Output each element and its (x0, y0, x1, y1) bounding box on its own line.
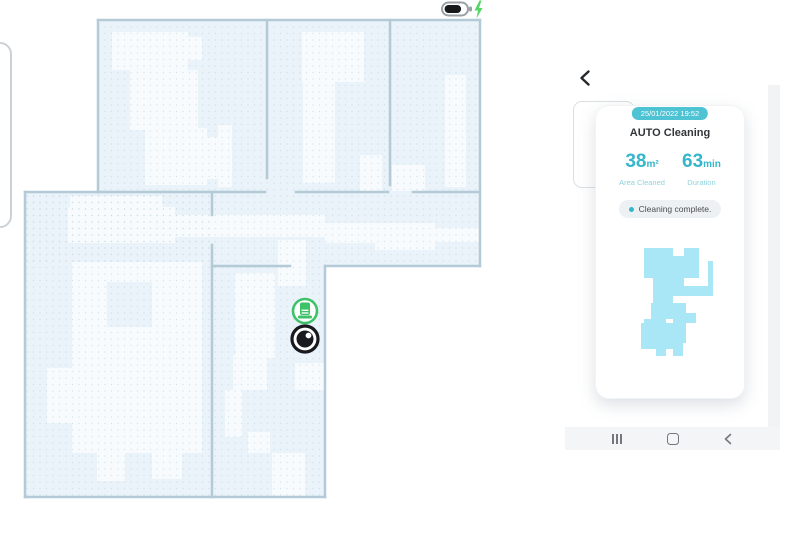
duration-unit: min (703, 159, 721, 170)
battery-charging-icon (442, 1, 483, 19)
recents-icon (612, 434, 622, 444)
battery-status (440, 0, 490, 20)
home-icon (667, 433, 679, 445)
charging-dock-marker (293, 299, 317, 323)
floor-map[interactable] (0, 0, 500, 520)
robot-lidar-dot (306, 333, 312, 339)
robot-marker (292, 326, 318, 352)
next-card-edge (768, 85, 780, 427)
map-dot-texture (25, 20, 480, 497)
back-button[interactable] (577, 69, 595, 87)
back-chevron-icon (577, 69, 595, 87)
area-value: 38 (625, 151, 646, 172)
dock-icon (298, 303, 312, 319)
status-dot-icon (629, 207, 634, 212)
stat-area: 38m² Area Cleaned (619, 152, 665, 187)
report-title: AUTO Cleaning (596, 127, 744, 139)
nav-back-button[interactable] (720, 431, 736, 447)
status-badge: Cleaning complete. (619, 200, 722, 218)
stats-row: 38m² Area Cleaned 63min Duration (596, 152, 744, 187)
phone-screen: 25/01/2022 19:52 AUTO Cleaning 38m² Area… (565, 56, 780, 450)
robot-body (297, 331, 314, 348)
duration-value: 63 (682, 151, 703, 172)
duration-label: Duration (687, 178, 715, 187)
home-button[interactable] (665, 431, 681, 447)
stat-duration: 63min Duration (682, 152, 721, 187)
recents-button[interactable] (609, 431, 625, 447)
cleaning-report-card: 25/01/2022 19:52 AUTO Cleaning 38m² Area… (595, 105, 745, 399)
status-text: Cleaning complete. (639, 204, 712, 214)
charging-bolt-icon (475, 1, 483, 19)
back-icon (723, 433, 733, 445)
date-badge: 25/01/2022 19:52 (632, 107, 708, 120)
area-label: Area Cleaned (619, 178, 665, 187)
android-nav-bar (565, 427, 780, 450)
area-unit: m² (646, 159, 658, 170)
cleaned-area-thumbnail (596, 246, 744, 371)
